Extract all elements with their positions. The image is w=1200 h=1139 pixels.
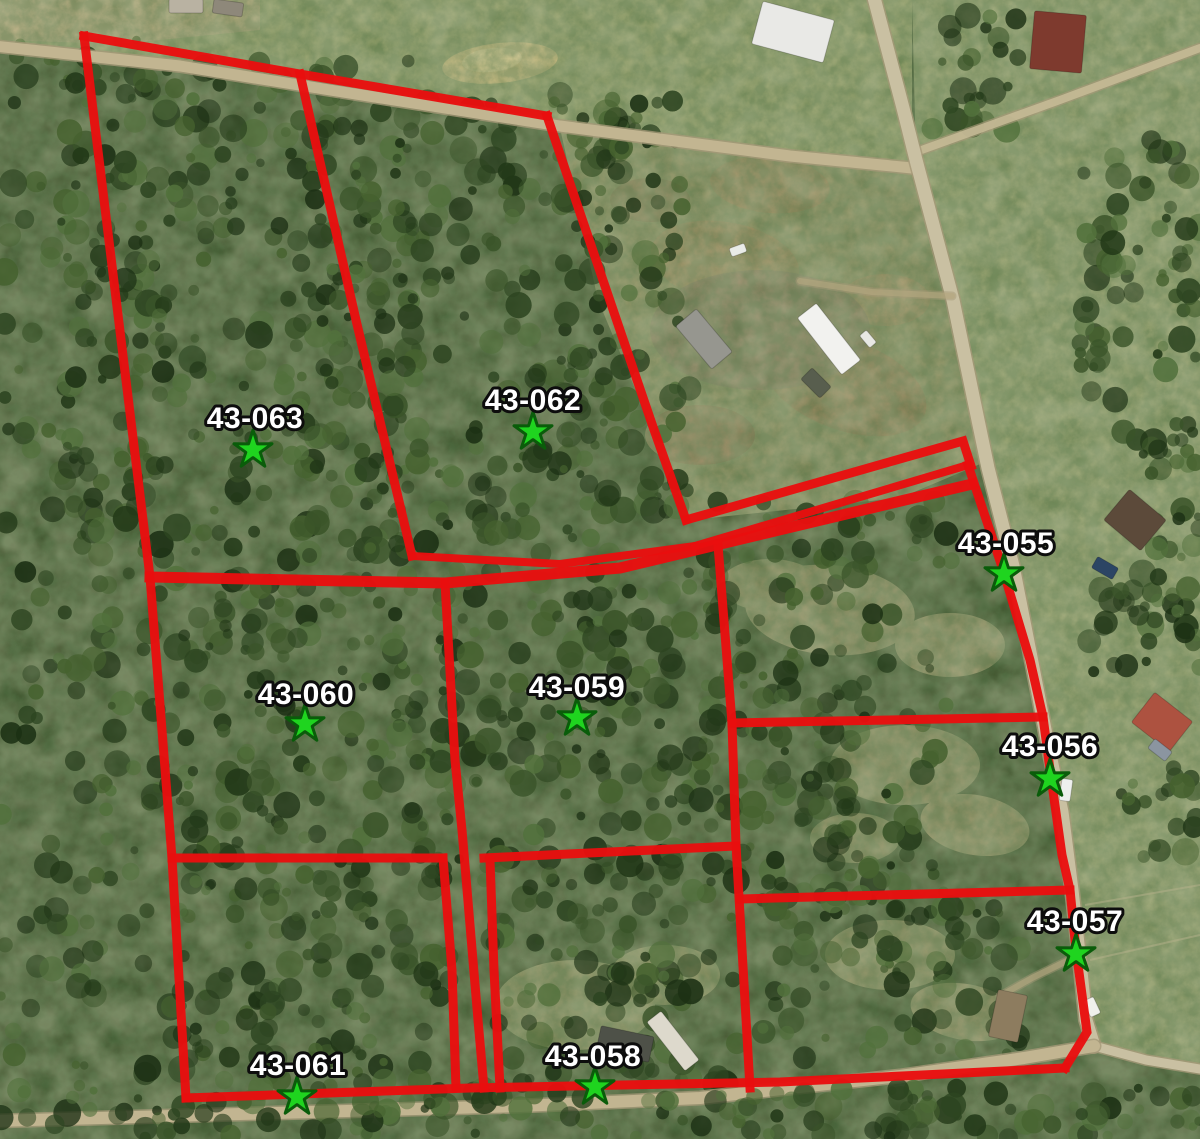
parcel-label-43-063[interactable]: 43-063	[207, 402, 303, 435]
building	[1030, 11, 1087, 73]
parcel-label-43-058[interactable]: 43-058	[545, 1040, 641, 1073]
parcel-label-43-059[interactable]: 43-059	[529, 671, 625, 704]
parcel-boundary-line	[732, 717, 1043, 723]
parcel-label-43-062[interactable]: 43-062	[485, 384, 581, 417]
parcel-label-43-060[interactable]: 43-060	[258, 678, 354, 711]
parcel-label-43-056[interactable]: 43-056	[1002, 730, 1098, 763]
aerial-parcel-map: 43-06343-06243-05543-06043-05943-05643-0…	[0, 0, 1200, 1139]
parcel-label-43-057[interactable]: 43-057	[1027, 905, 1123, 938]
parcel-label-43-061[interactable]: 43-061	[250, 1049, 346, 1082]
building	[169, 0, 203, 13]
parcel-label-43-055[interactable]: 43-055	[958, 527, 1054, 560]
map-canvas[interactable]: 43-06343-06243-05543-06043-05943-05643-0…	[0, 0, 1200, 1139]
